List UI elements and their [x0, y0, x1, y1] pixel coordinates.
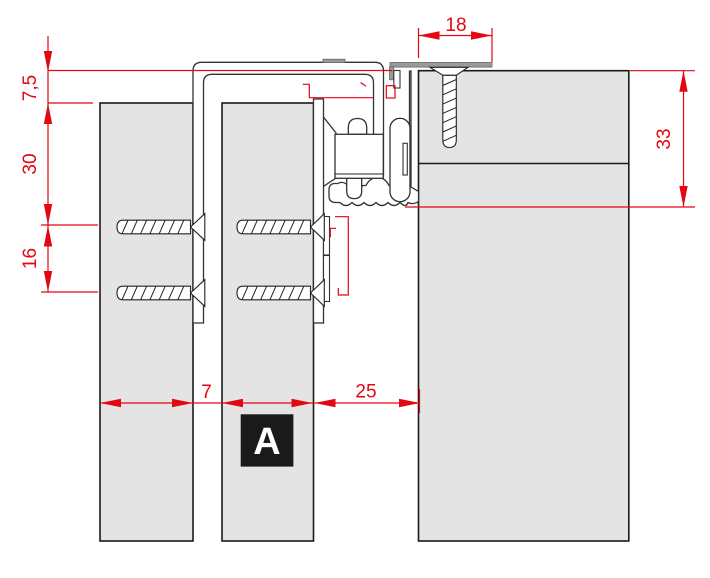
arrow-right-icon — [471, 31, 492, 39]
arrow-left-icon — [315, 399, 336, 407]
dim-label-7: 7 — [201, 382, 212, 403]
arrow-down-icon — [679, 186, 687, 207]
panel-middle — [222, 103, 314, 541]
bracket-flange — [390, 63, 492, 68]
dim-label-30: 30 — [20, 153, 41, 174]
technical-drawing-canvas: 7,5 30 16 18 33 7 25 — [0, 0, 710, 578]
dim-label-16: 16 — [20, 248, 41, 269]
roller-axle-bar — [403, 143, 407, 175]
panel-left — [100, 103, 193, 541]
detail-callout-lower — [330, 217, 348, 295]
dim-label-33: 33 — [654, 128, 675, 149]
detail-marker-label: A — [253, 421, 280, 463]
cross-section-drawing: 7,5 30 16 18 33 7 25 — [0, 0, 710, 578]
arrow-up-icon — [679, 71, 687, 92]
dimension-18: 18 — [419, 15, 493, 62]
dim-label-18: 18 — [445, 15, 466, 36]
carriage-bottom-post — [347, 178, 362, 198]
arrow-up-icon — [44, 226, 52, 247]
dim-label-25: 25 — [355, 382, 376, 403]
arrow-down-icon — [44, 271, 52, 292]
arrow-down-icon — [44, 204, 52, 225]
arrow-down-icon — [44, 51, 52, 72]
carriage-top-pin — [348, 119, 366, 135]
anti-jump-tab — [323, 59, 345, 62]
detail-marker-a: A — [241, 414, 294, 466]
arrow-left-icon — [419, 31, 440, 39]
dim-label-7-5: 7,5 — [20, 75, 41, 101]
arrow-up-icon — [44, 103, 52, 124]
arrow-right-icon — [399, 399, 420, 407]
bracket-end-tab — [390, 67, 394, 80]
carriage-block — [335, 134, 383, 178]
